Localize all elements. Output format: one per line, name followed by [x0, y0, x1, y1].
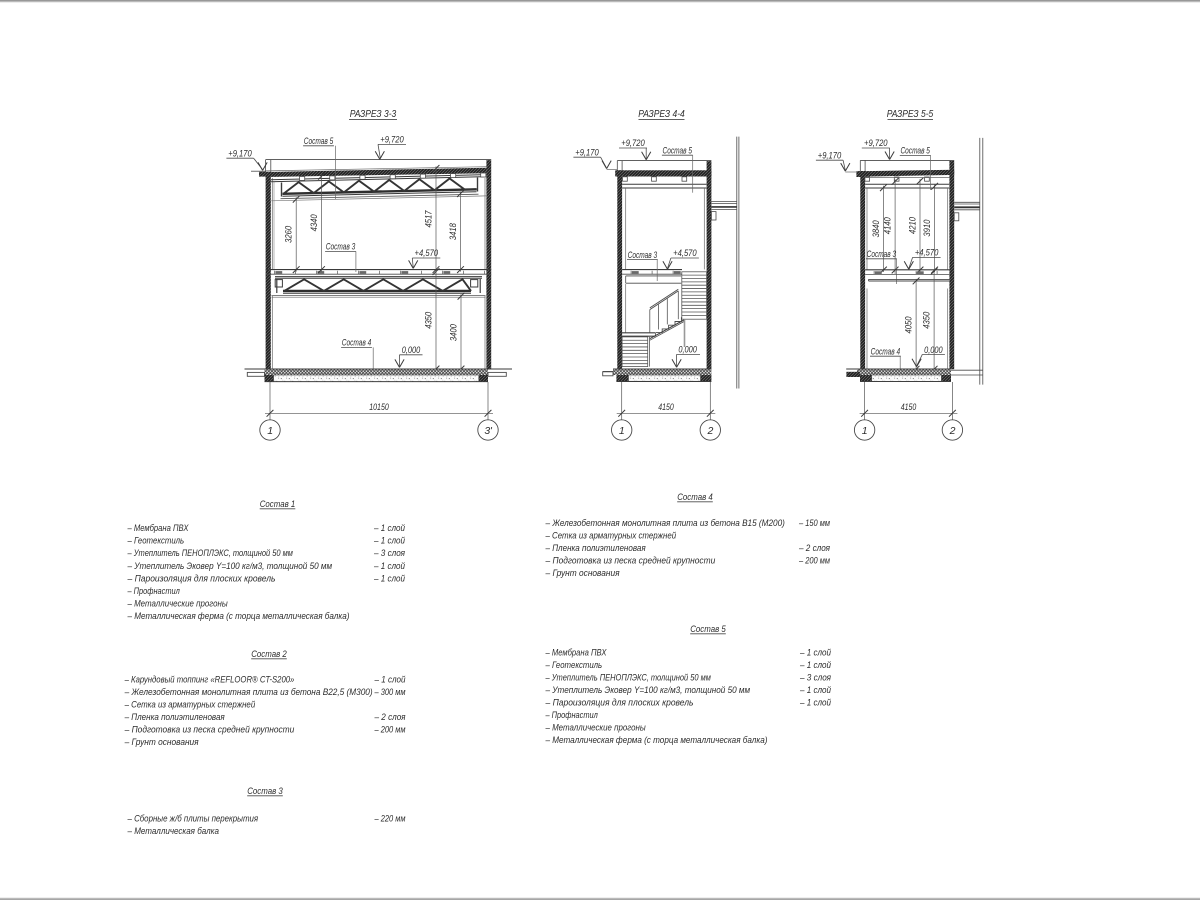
svg-text:– Металлическая ферма (с торц: – Металлическая ферма (с торца металличе… [127, 610, 350, 621]
svg-text:– Подготовка из песка средней: – Подготовка из песка средней крупности [124, 723, 295, 734]
svg-text:– 1 слой: – 1 слой [373, 560, 406, 571]
svg-text:– Профнастил: – Профнастил [127, 585, 181, 596]
svg-text:Состав 3: Состав 3 [867, 248, 897, 259]
svg-text:– Карундовый топпинг «REFLOOR: – Карундовый топпинг «REFLOOR® CT-S200» [124, 674, 295, 685]
svg-text:РАЗРЕЗ 5-5: РАЗРЕЗ 5-5 [887, 109, 934, 120]
svg-text:1: 1 [619, 425, 625, 437]
svg-text:4140: 4140 [883, 216, 893, 234]
svg-text:Состав 3: Состав 3 [247, 785, 283, 796]
svg-text:Состав 5: Состав 5 [663, 144, 693, 155]
svg-text:– 300 мм: – 300 мм [374, 686, 406, 697]
svg-text:3910: 3910 [922, 219, 932, 237]
svg-text:Состав 3: Состав 3 [628, 249, 658, 260]
svg-text:– Геотекстиль: – Геотекстиль [127, 535, 185, 546]
svg-text:– Пленка полиэтиленовая: – Пленка полиэтиленовая [545, 542, 646, 553]
svg-text:– Утеплитель ПЕНОПЛЭКС, толщи: – Утеплитель ПЕНОПЛЭКС, толщиной 50 мм [545, 672, 712, 683]
svg-text:– 1 слой: – 1 слой [799, 659, 832, 670]
svg-text:10150: 10150 [369, 402, 389, 412]
svg-text:– 1 слой: – 1 слой [799, 697, 832, 708]
svg-text:– Пароизоляция для плоских кр: – Пароизоляция для плоских кровель [545, 697, 694, 708]
svg-text:РАЗРЕЗ 4-4: РАЗРЕЗ 4-4 [638, 109, 685, 120]
svg-text:– Утеплитель Эковер Y=100 кг/: – Утеплитель Эковер Y=100 кг/м3, толщино… [545, 684, 751, 695]
svg-text:+9,720: +9,720 [864, 137, 888, 148]
svg-text:– Мембрана ПВХ: – Мембрана ПВХ [127, 522, 189, 533]
svg-text:– Металлическая балка: – Металлическая балка [127, 825, 219, 836]
svg-text:– Подготовка из песка средней: – Подготовка из песка средней крупности [545, 555, 716, 566]
svg-text:– Сборные ж/б плиты перекрыти: – Сборные ж/б плиты перекрытия [127, 813, 258, 824]
svg-text:– Утеплитель Эковер Y=100 кг/: – Утеплитель Эковер Y=100 кг/м3, толщино… [127, 560, 333, 571]
svg-text:– 1 слой: – 1 слой [373, 572, 406, 583]
svg-text:+4,570: +4,570 [415, 247, 439, 258]
svg-text:– 1 слой: – 1 слой [373, 522, 406, 533]
svg-text:+9,720: +9,720 [380, 134, 404, 145]
svg-text:+4,570: +4,570 [915, 247, 939, 258]
svg-text:– Грунт основания: – Грунт основания [124, 736, 199, 747]
svg-text:– Железобетонная монолитная: – Железобетонная монолитная плита из бет… [124, 686, 373, 697]
svg-text:– 3 слоя: – 3 слоя [799, 672, 831, 683]
svg-text:– 3 слоя: – 3 слоя [373, 547, 405, 558]
svg-text:– 1 слой: – 1 слой [799, 647, 832, 658]
svg-text:Состав 1: Состав 1 [260, 498, 296, 509]
svg-text:+9,720: +9,720 [621, 137, 645, 148]
svg-text:1: 1 [862, 425, 868, 437]
svg-text:– Пленка полиэтиленовая: – Пленка полиэтиленовая [124, 711, 225, 722]
svg-text:4350: 4350 [423, 311, 433, 329]
svg-text:1: 1 [267, 425, 273, 437]
svg-text:Состав 3: Состав 3 [326, 241, 356, 252]
svg-text:4350: 4350 [922, 311, 932, 329]
svg-text:– Мембрана ПВХ: – Мембрана ПВХ [545, 647, 607, 658]
svg-text:– 150 мм: – 150 мм [798, 517, 830, 528]
svg-text:3418: 3418 [448, 222, 458, 240]
svg-text:Состав 4: Состав 4 [871, 345, 901, 356]
svg-text:– Утеплитель ПЕНОПЛЭКС, толщи: – Утеплитель ПЕНОПЛЭКС, толщиной 50 мм [127, 547, 294, 558]
svg-text:– 2 слоя: – 2 слоя [798, 542, 830, 553]
svg-text:3': 3' [484, 425, 493, 437]
svg-text:Состав 5: Состав 5 [304, 135, 334, 146]
svg-text:– 220 мм: – 220 мм [374, 813, 406, 824]
svg-text:0,000: 0,000 [402, 344, 421, 355]
svg-text:+4,570: +4,570 [673, 247, 697, 258]
svg-text:2: 2 [707, 425, 714, 437]
svg-text:– Сетка из арматурных стержне: – Сетка из арматурных стержней [124, 698, 256, 709]
svg-text:+9,170: +9,170 [228, 147, 252, 158]
svg-text:– Геотекстиль: – Геотекстиль [545, 659, 603, 670]
svg-text:+9,170: +9,170 [818, 149, 842, 160]
svg-text:Состав 4: Состав 4 [342, 337, 372, 348]
svg-text:– 200 мм: – 200 мм [374, 723, 406, 734]
svg-text:4517: 4517 [423, 210, 433, 228]
svg-text:+9,170: +9,170 [575, 146, 599, 157]
svg-text:– Металлические прогоны: – Металлические прогоны [127, 598, 228, 609]
svg-text:4150: 4150 [901, 402, 917, 412]
svg-text:– 1 слой: – 1 слой [374, 674, 407, 685]
svg-text:4340: 4340 [309, 214, 319, 232]
svg-text:4150: 4150 [658, 402, 674, 412]
svg-text:– Пароизоляция для плоских кр: – Пароизоляция для плоских кровель [127, 572, 276, 583]
svg-text:– 200 мм: – 200 мм [798, 555, 830, 566]
svg-text:– 1 слой: – 1 слой [799, 684, 832, 695]
svg-text:– Металлическая ферма (с торц: – Металлическая ферма (с торца металличе… [545, 734, 768, 745]
svg-text:– 1 слой: – 1 слой [373, 535, 406, 546]
svg-text:– Сетка из арматурных стержне: – Сетка из арматурных стержней [545, 530, 677, 541]
svg-text:3400: 3400 [448, 323, 458, 341]
svg-text:– Грунт основания: – Грунт основания [545, 567, 620, 578]
svg-text:Состав 5: Состав 5 [690, 623, 726, 634]
svg-text:– Профнастил: – Профнастил [545, 709, 599, 720]
svg-text:3260: 3260 [284, 225, 294, 243]
svg-text:0,000: 0,000 [678, 344, 697, 355]
svg-text:Состав 2: Состав 2 [251, 648, 287, 659]
svg-text:– Железобетонная монолитная: – Железобетонная монолитная плита из бет… [545, 517, 785, 528]
svg-text:2: 2 [949, 425, 956, 437]
svg-text:Состав 4: Состав 4 [677, 491, 713, 502]
svg-text:Состав 5: Состав 5 [900, 145, 930, 156]
svg-text:0,000: 0,000 [924, 344, 943, 355]
svg-text:4050: 4050 [904, 316, 914, 334]
svg-text:– 2 слоя: – 2 слоя [374, 711, 406, 722]
svg-text:4210: 4210 [907, 216, 917, 234]
svg-text:– Металлические прогоны: – Металлические прогоны [545, 722, 646, 733]
svg-text:РАЗРЕЗ 3-3: РАЗРЕЗ 3-3 [350, 109, 397, 120]
svg-text:3840: 3840 [871, 220, 881, 238]
